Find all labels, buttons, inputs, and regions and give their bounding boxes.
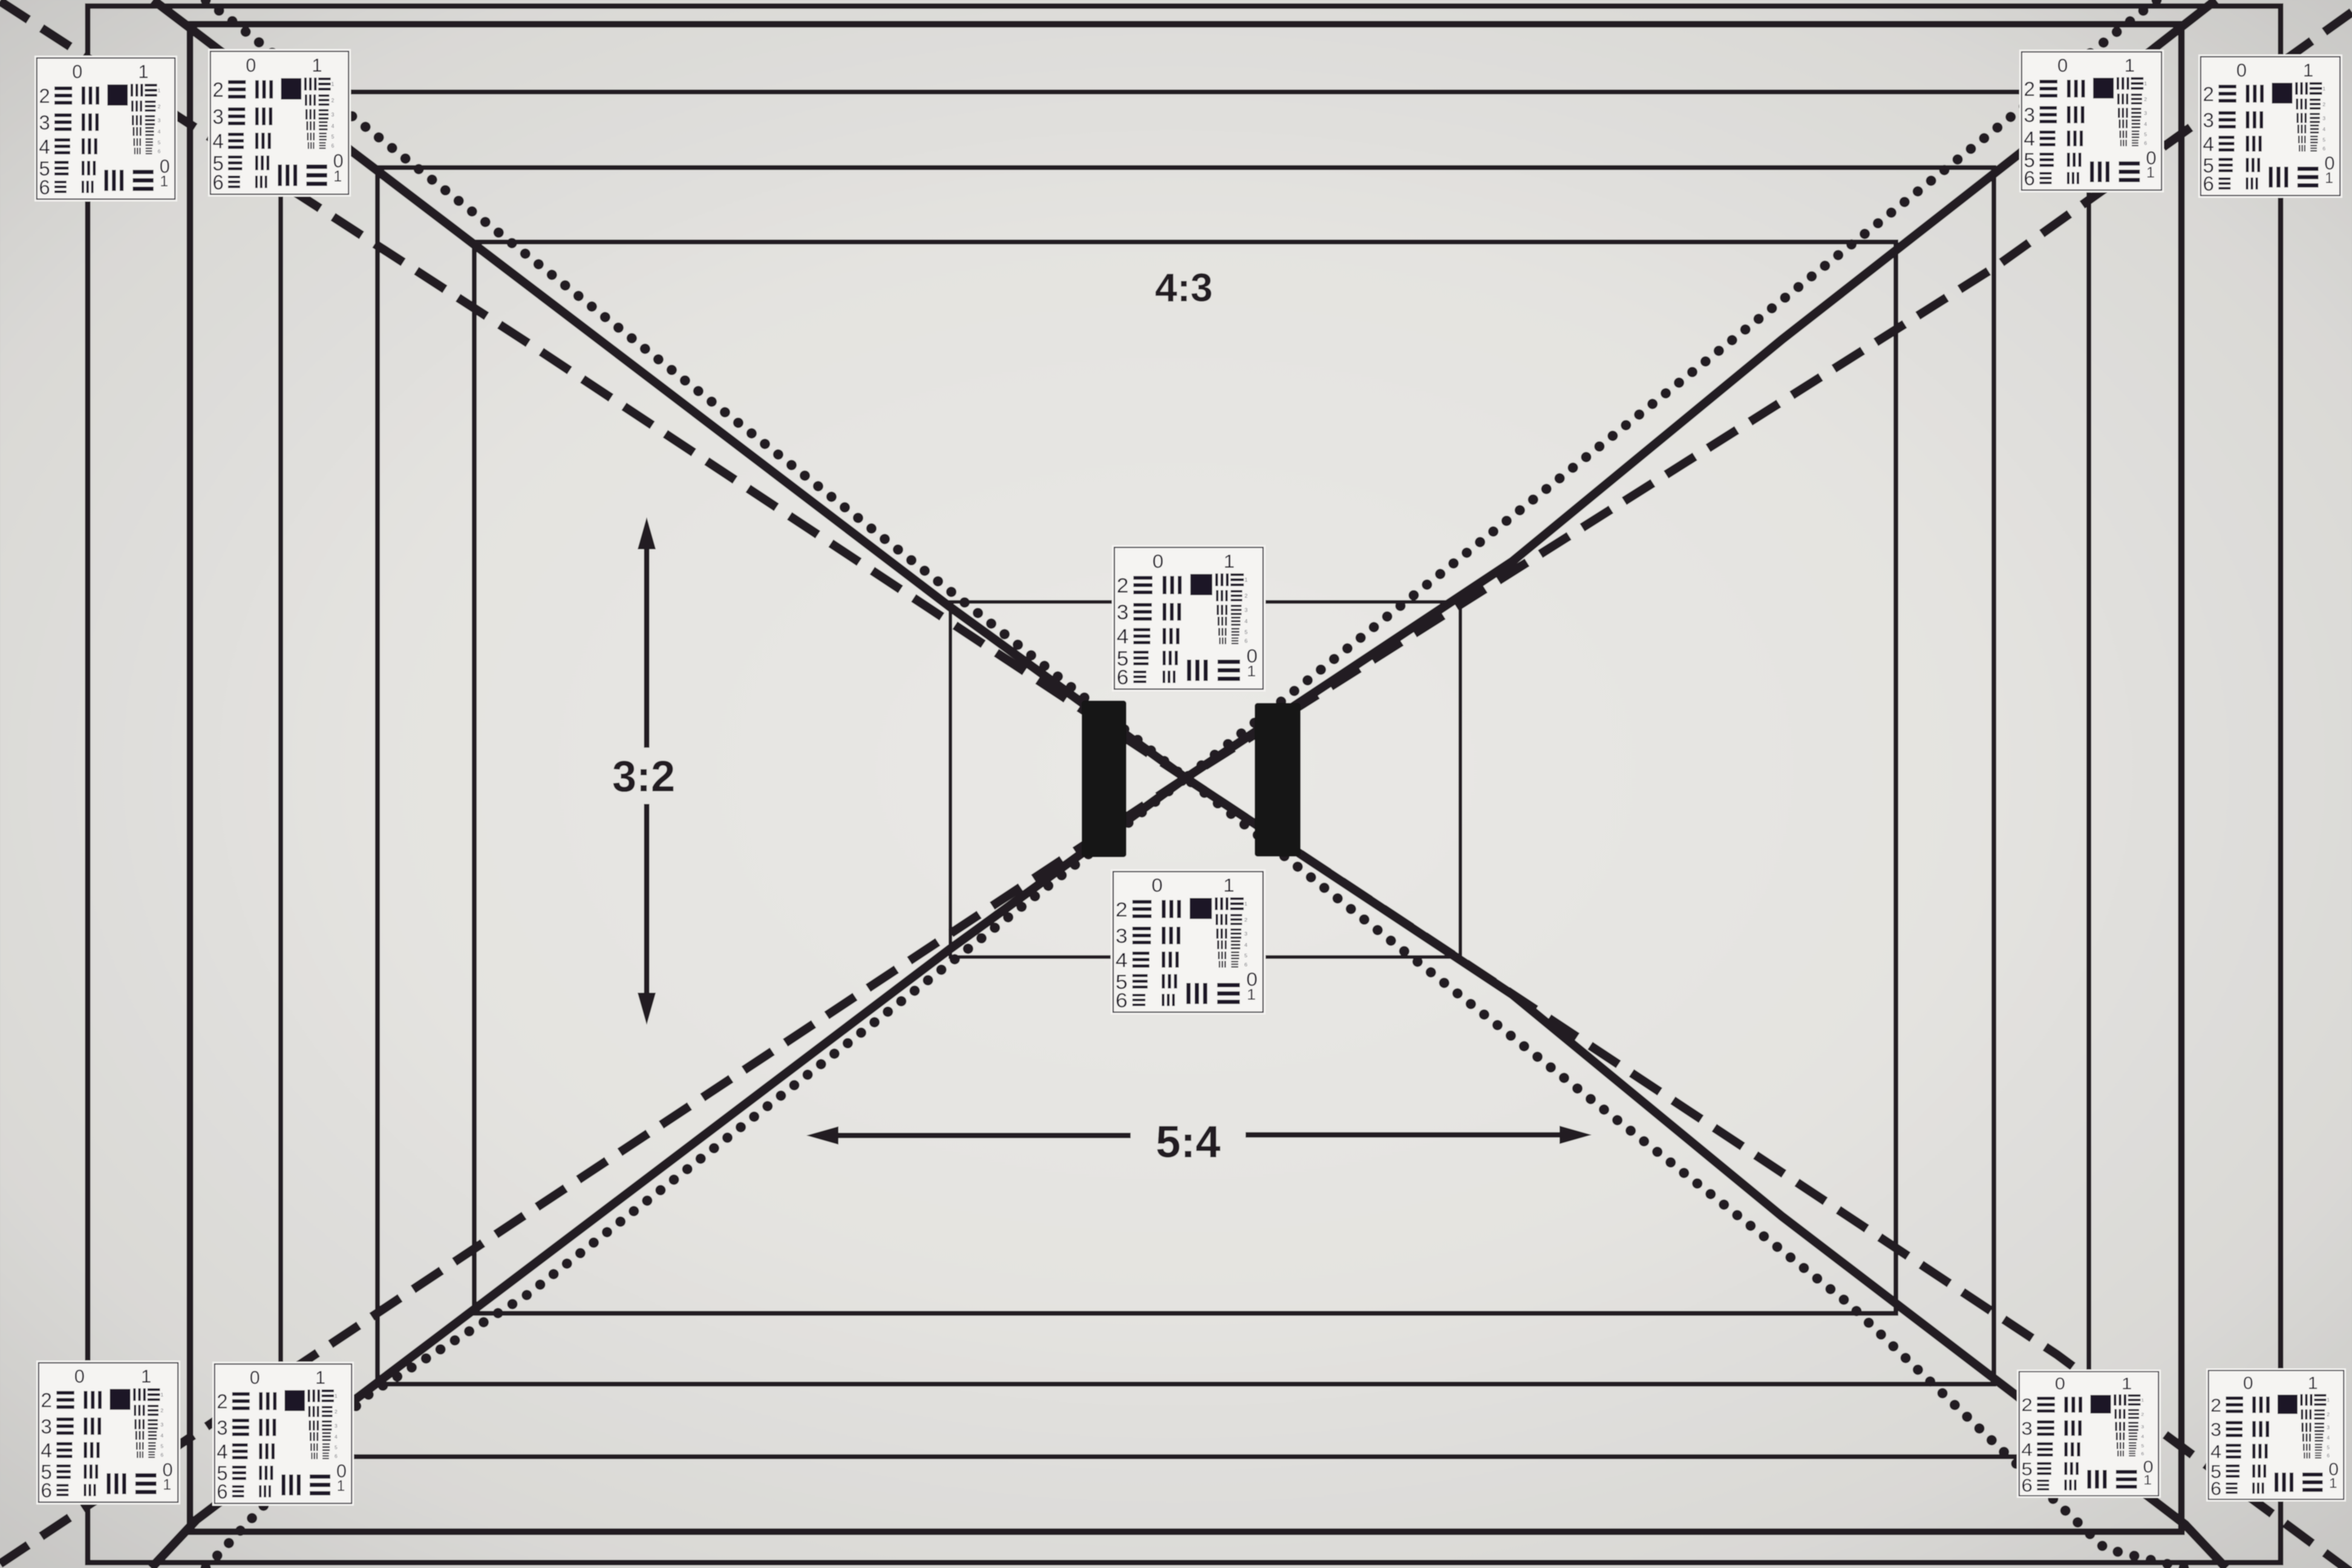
svg-text:4:3: 4:3 bbox=[1155, 265, 1212, 310]
svg-text:5:4: 5:4 bbox=[1156, 1117, 1221, 1167]
svg-text:3:2: 3:2 bbox=[612, 753, 675, 801]
